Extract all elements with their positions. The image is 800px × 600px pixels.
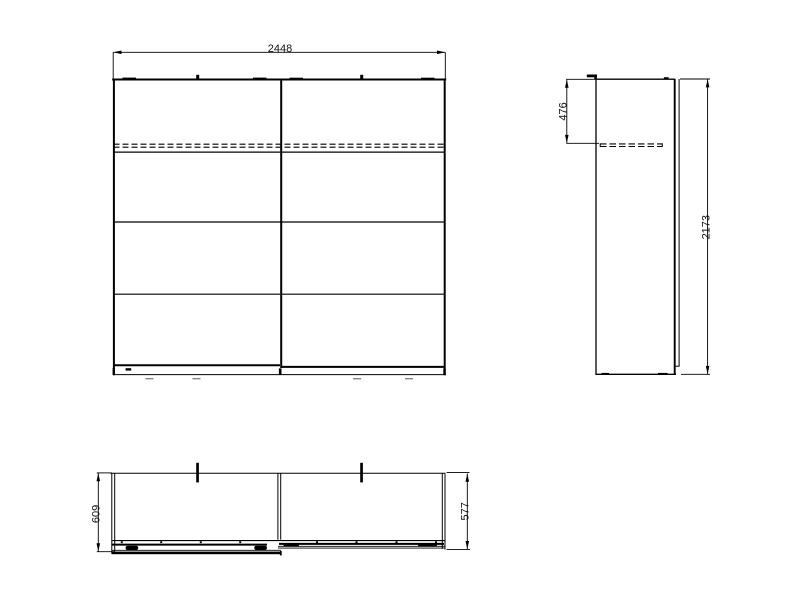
svg-text:2448: 2448 [268,43,292,55]
svg-text:609: 609 [91,505,103,523]
svg-text:476: 476 [558,102,570,120]
svg-text:577: 577 [459,502,471,520]
svg-text:2173: 2173 [700,215,712,239]
